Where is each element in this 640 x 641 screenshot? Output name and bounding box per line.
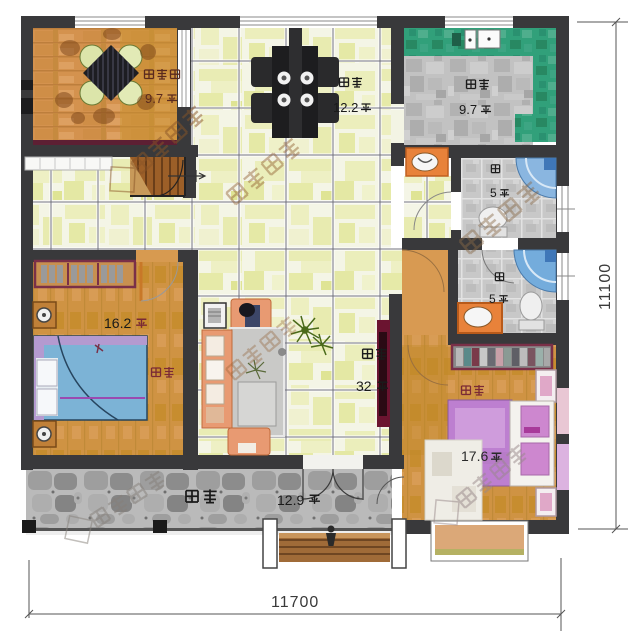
- svg-text:9.7: 9.7: [459, 102, 477, 117]
- svg-text:12.2: 12.2: [333, 100, 358, 115]
- svg-text:5: 5: [489, 292, 496, 306]
- svg-text:12.9: 12.9: [277, 492, 304, 508]
- svg-text:11700: 11700: [271, 594, 319, 611]
- svg-text:16.2: 16.2: [104, 315, 131, 331]
- svg-text:17.6: 17.6: [461, 448, 488, 464]
- svg-text:5: 5: [490, 186, 497, 200]
- svg-text:32: 32: [356, 378, 372, 394]
- svg-text:11100: 11100: [597, 263, 614, 310]
- svg-text:9.7: 9.7: [145, 91, 163, 106]
